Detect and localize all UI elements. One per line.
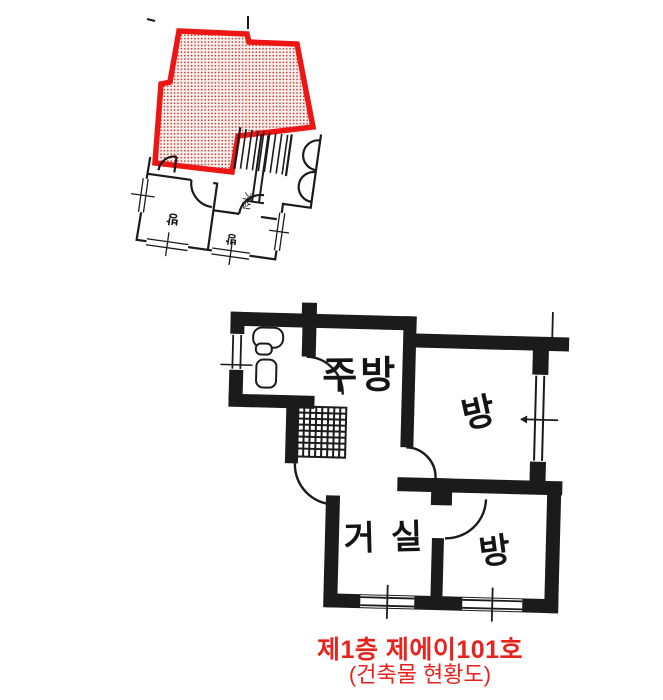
site-room-a-label: 방 xyxy=(166,210,180,228)
caption: 제1층 제에이101호 (건축물 현황도) xyxy=(270,637,570,687)
wall xyxy=(400,316,416,447)
wall xyxy=(323,495,340,607)
wall xyxy=(532,344,549,377)
staircase xyxy=(230,127,292,206)
wall xyxy=(544,485,561,613)
floor-plan-canvas: 방 방 거실 xyxy=(0,0,663,700)
caption-title: 제1층 제에이101호 xyxy=(270,637,570,663)
site-room-b-label: 방 xyxy=(225,231,238,247)
entry-hatch-grid xyxy=(297,406,346,457)
caption-subtitle: (건축물 현황도) xyxy=(270,663,570,687)
site-hall-label: 거실 xyxy=(239,191,253,211)
door-arc xyxy=(188,180,215,207)
kitchen-label: 주방 xyxy=(322,353,398,398)
site-plan: 방 방 거실 xyxy=(123,16,321,275)
wall xyxy=(302,320,317,357)
wall xyxy=(302,303,317,316)
living-room-label: 거실 xyxy=(343,517,439,559)
room-bottom-right-label: 방 xyxy=(477,530,513,574)
wall-tick xyxy=(147,19,155,21)
window-tick-arrow xyxy=(520,415,527,423)
washbasin-icon xyxy=(256,359,277,388)
unit-plan: 주방 방 거실 방 xyxy=(214,300,570,623)
wall xyxy=(433,492,445,502)
floorplan-document: { "document": { "background": "#ffffff",… xyxy=(0,0,663,700)
room-top-right-label: 방 xyxy=(458,390,499,437)
bathroom-fixtures xyxy=(252,327,284,388)
door-arc-room-top xyxy=(406,447,437,478)
toilet-icon xyxy=(256,343,272,354)
